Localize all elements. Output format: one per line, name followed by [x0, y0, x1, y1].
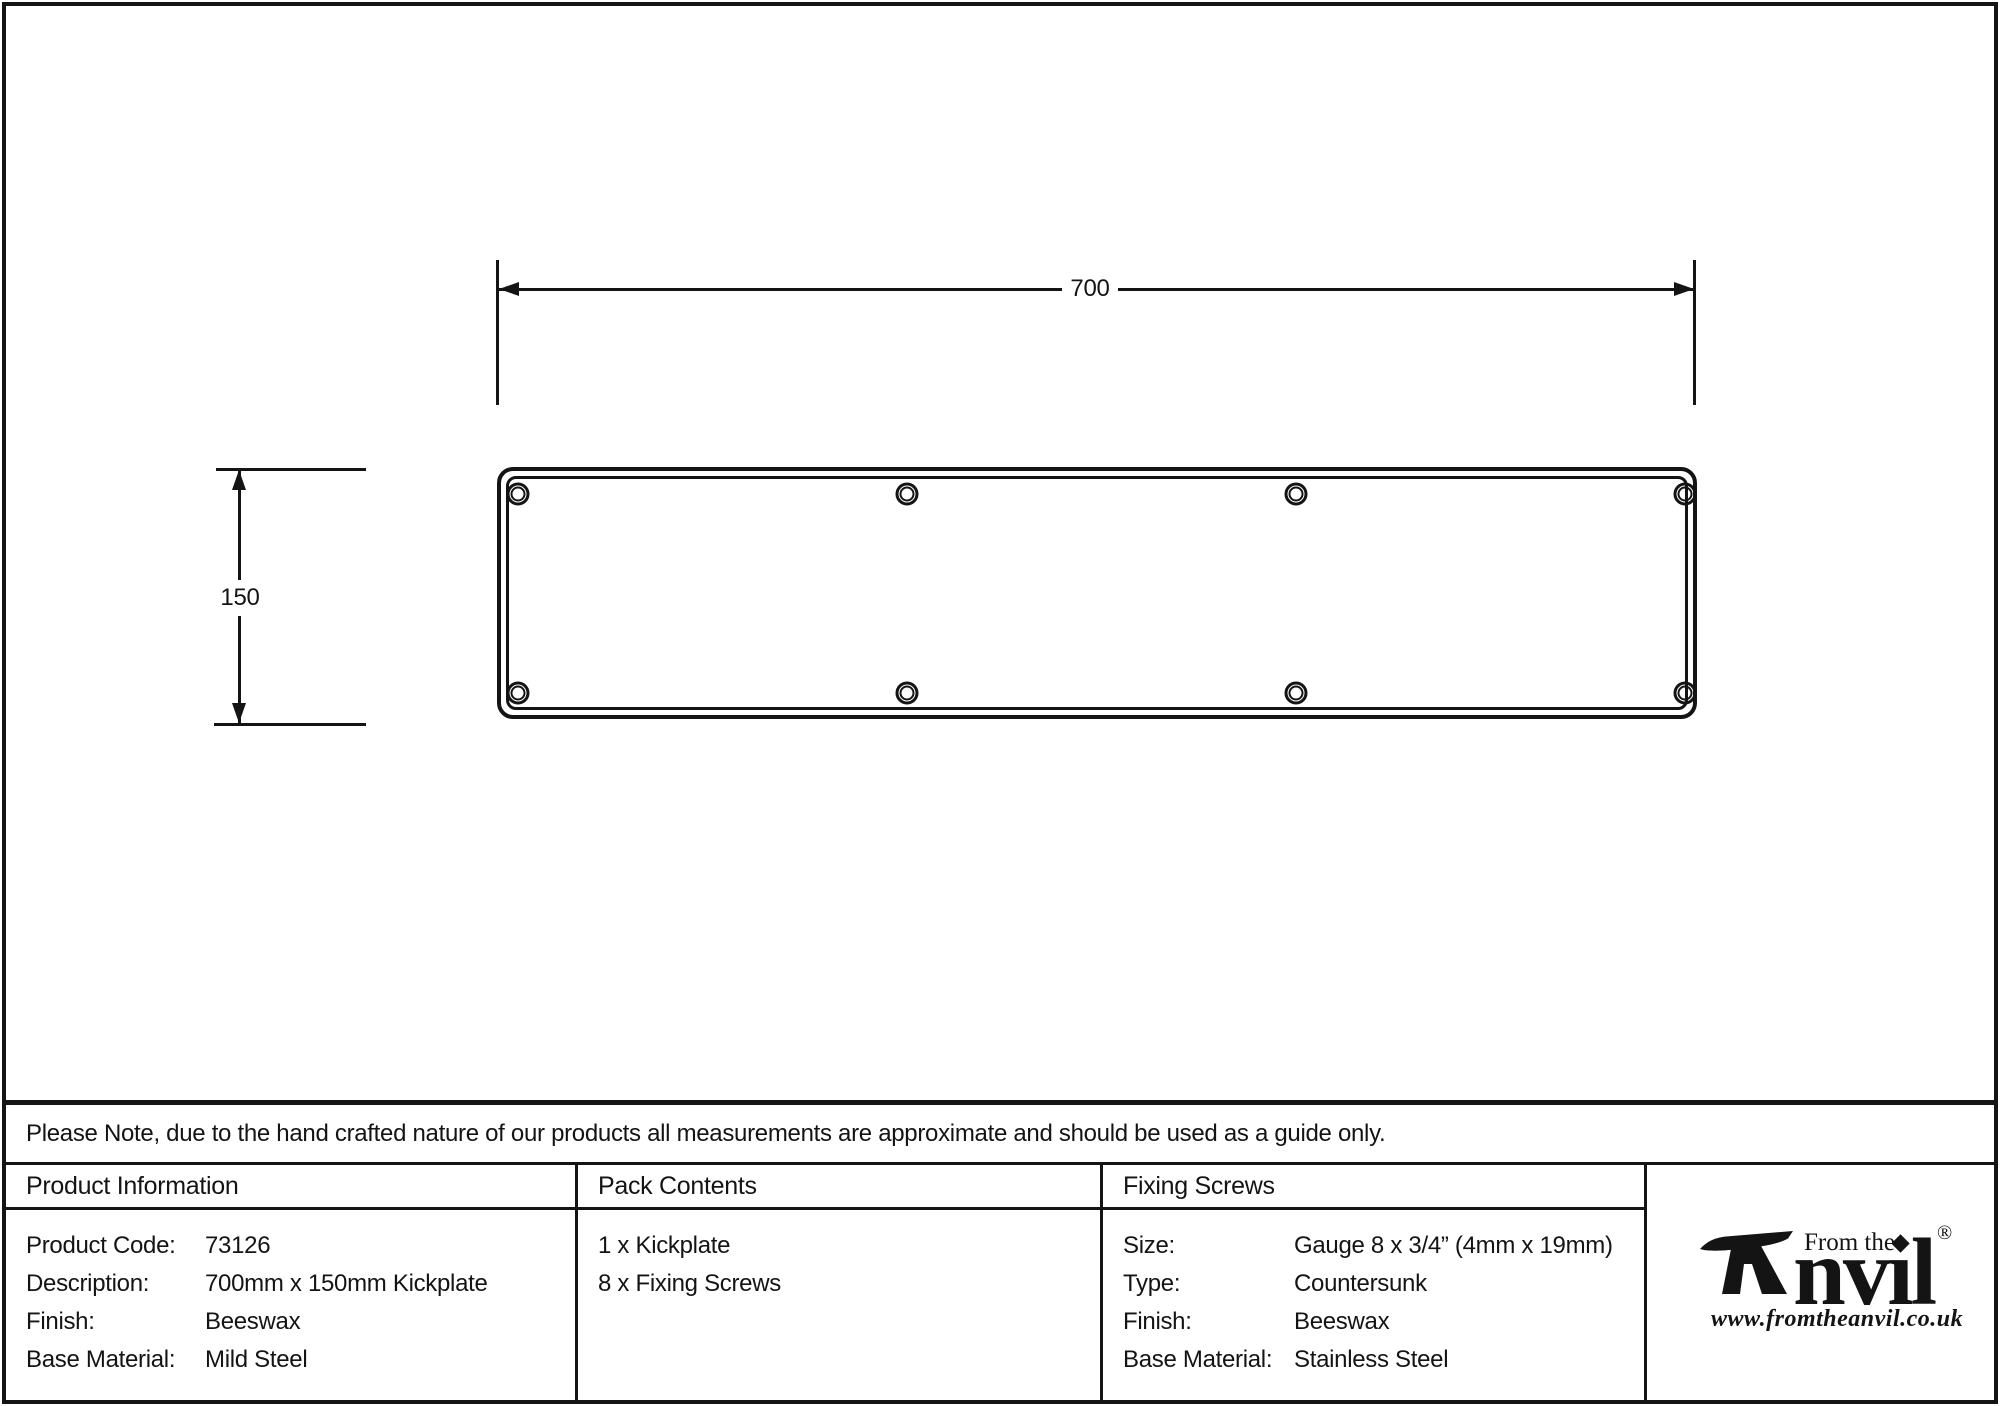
- brand-logo-cell: From the nvıl ® www.fromtheanvil.co.uk: [1647, 1165, 1994, 1400]
- from-the-anvil-logo: From the nvıl ® www.fromtheanvil.co.uk: [1647, 1165, 1994, 1400]
- logo-website: www.fromtheanvil.co.uk: [1711, 1306, 1963, 1333]
- height-dimension-label: 150: [212, 584, 267, 612]
- row-value: Gauge 8 x 3/4” (4mm x 19mm): [1294, 1227, 1613, 1265]
- row-label: Size:: [1123, 1227, 1294, 1265]
- table-row: Base Material: Mild Steel: [26, 1341, 565, 1379]
- screw-hole: [507, 682, 530, 705]
- row-value: Beeswax: [205, 1303, 300, 1341]
- row-value: 73126: [205, 1227, 270, 1265]
- info-section: Please Note, due to the hand crafted nat…: [2, 1100, 1998, 1404]
- registered-trademark: ®: [1937, 1223, 1952, 1243]
- table-row: Base Material: Stainless Steel: [1123, 1341, 1634, 1379]
- fixing-screws-column: Fixing Screws Size: Gauge 8 x 3/4” (4mm …: [1103, 1165, 1647, 1400]
- table-row: Product Code: 73126: [26, 1227, 565, 1265]
- screw-hole: [507, 483, 530, 506]
- row-value: Beeswax: [1294, 1303, 1389, 1341]
- product-information-header: Product Information: [6, 1165, 575, 1210]
- width-dimension-line-left: [499, 288, 1062, 291]
- row-value: 700mm x 150mm Kickplate: [205, 1265, 488, 1303]
- dimension-arrow-down-icon: [232, 703, 246, 723]
- row-value: Stainless Steel: [1294, 1341, 1448, 1379]
- row-label: Base Material:: [26, 1341, 205, 1379]
- width-dimension-line-right: [1118, 288, 1694, 291]
- row-label: Base Material:: [1123, 1341, 1294, 1379]
- dimension-arrow-right-icon: [1674, 282, 1694, 296]
- row-value: Mild Steel: [205, 1341, 307, 1379]
- width-dimension-label: 700: [1062, 275, 1117, 303]
- disclaimer-note: Please Note, due to the hand crafted nat…: [6, 1105, 1994, 1165]
- table-row: Size: Gauge 8 x 3/4” (4mm x 19mm): [1123, 1227, 1634, 1265]
- row-value: Countersunk: [1294, 1265, 1427, 1303]
- row-label: Finish:: [26, 1303, 205, 1341]
- list-item: 1 x Kickplate: [598, 1227, 1090, 1265]
- screw-hole: [896, 483, 919, 506]
- pack-contents-header: Pack Contents: [578, 1165, 1100, 1210]
- screw-hole: [896, 682, 919, 705]
- fixing-screws-body: Size: Gauge 8 x 3/4” (4mm x 19mm) Type: …: [1103, 1210, 1644, 1379]
- table-row: Type: Countersunk: [1123, 1265, 1634, 1303]
- dimension-arrow-left-icon: [499, 282, 519, 296]
- screw-hole: [1674, 483, 1697, 506]
- screw-hole: [1285, 682, 1308, 705]
- anvil-icon: [1700, 1230, 1794, 1294]
- row-label: Finish:: [1123, 1303, 1294, 1341]
- row-label: Product Code:: [26, 1227, 205, 1265]
- product-information-body: Product Code: 73126 Description: 700mm x…: [6, 1210, 575, 1379]
- spec-table: Product Information Product Code: 73126 …: [6, 1165, 1994, 1400]
- kickplate-inner-outline: [506, 476, 1688, 710]
- row-label: Type:: [1123, 1265, 1294, 1303]
- kickplate-outline: [497, 467, 1697, 719]
- fixing-screws-header: Fixing Screws: [1103, 1165, 1644, 1210]
- height-extension-line-bottom: [214, 723, 366, 726]
- pack-contents-body: 1 x Kickplate 8 x Fixing Screws: [578, 1210, 1100, 1303]
- row-label: Description:: [26, 1265, 205, 1303]
- screw-hole: [1285, 483, 1308, 506]
- screw-hole: [1674, 682, 1697, 705]
- spec-sheet-page: 700 150 Please Note, due to the hand cra…: [0, 0, 2000, 1406]
- dimension-arrow-up-icon: [232, 470, 246, 490]
- table-row: Description: 700mm x 150mm Kickplate: [26, 1265, 565, 1303]
- list-item: 8 x Fixing Screws: [598, 1265, 1090, 1303]
- product-information-column: Product Information Product Code: 73126 …: [6, 1165, 578, 1400]
- pack-contents-column: Pack Contents 1 x Kickplate 8 x Fixing S…: [578, 1165, 1103, 1400]
- table-row: Finish: Beeswax: [26, 1303, 565, 1341]
- table-row: Finish: Beeswax: [1123, 1303, 1634, 1341]
